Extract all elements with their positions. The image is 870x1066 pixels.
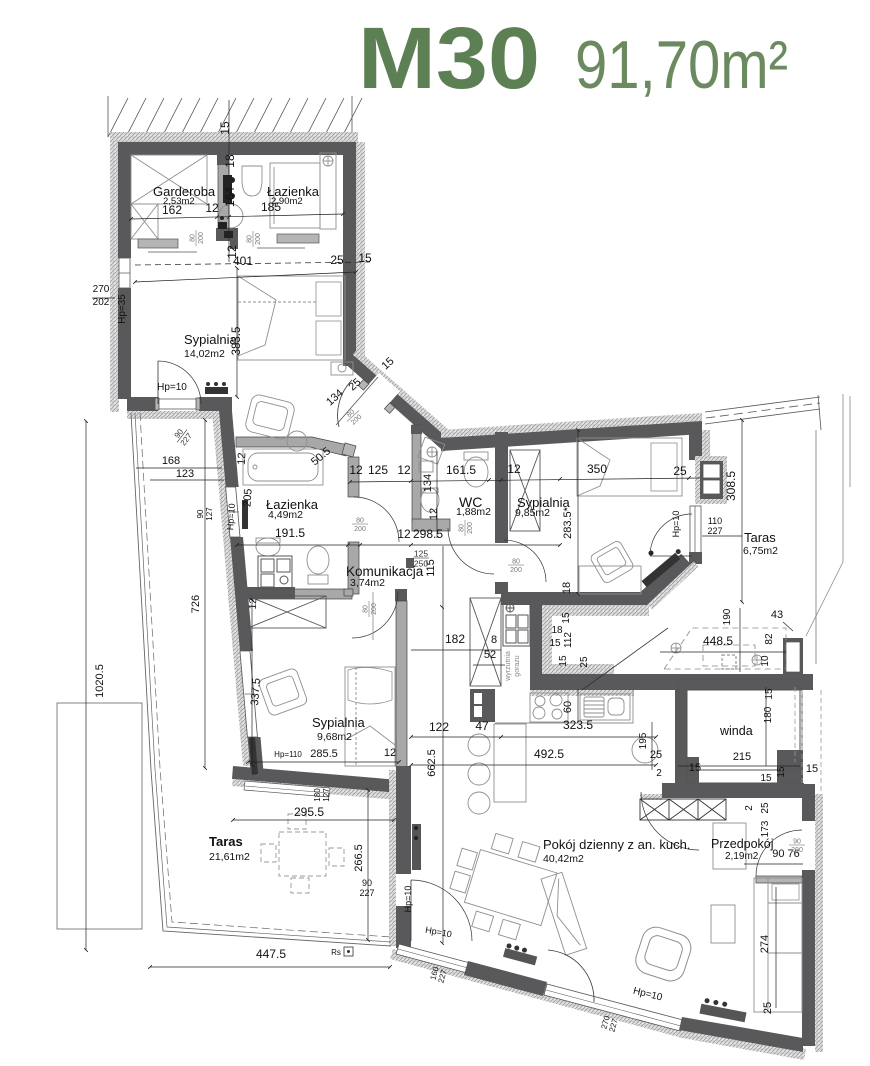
svg-text:205: 205: [241, 488, 254, 507]
svg-text:200: 200: [510, 567, 522, 574]
svg-text:12: 12: [397, 527, 411, 541]
svg-text:122: 122: [429, 720, 449, 734]
svg-text:1,88m2: 1,88m2: [456, 506, 491, 518]
svg-text:295.5: 295.5: [294, 805, 324, 819]
svg-text:14,02m2: 14,02m2: [184, 348, 225, 360]
svg-text:Taras: Taras: [209, 834, 243, 849]
svg-text:Rs: Rs: [331, 948, 341, 957]
svg-text:6,75m2: 6,75m2: [743, 545, 778, 557]
svg-text:15: 15: [689, 762, 701, 774]
svg-text:12: 12: [225, 245, 239, 259]
svg-text:60: 60: [562, 701, 574, 713]
svg-text:Pokój dzienny z an. kuch.: Pokój dzienny z an. kuch.: [543, 837, 690, 852]
svg-text:323.5: 323.5: [563, 718, 593, 732]
svg-text:Hp=110: Hp=110: [274, 750, 302, 759]
svg-text:337.5: 337.5: [249, 678, 263, 706]
svg-text:9,85m2: 9,85m2: [515, 507, 550, 519]
svg-text:Hp=35: Hp=35: [117, 294, 128, 324]
svg-text:202: 202: [93, 297, 110, 308]
svg-text:90: 90: [196, 509, 205, 518]
svg-text:182: 182: [445, 632, 465, 646]
svg-text:195: 195: [638, 732, 649, 749]
svg-text:298.5: 298.5: [413, 527, 443, 541]
svg-text:21,61m2: 21,61m2: [209, 851, 250, 863]
svg-text:127: 127: [205, 507, 214, 521]
svg-text:15: 15: [558, 655, 569, 667]
svg-text:134: 134: [422, 474, 434, 492]
svg-text:200: 200: [791, 847, 803, 854]
svg-text:9,68m2: 9,68m2: [317, 731, 352, 743]
svg-text:12: 12: [507, 462, 521, 476]
svg-text:12: 12: [349, 463, 363, 477]
svg-text:125: 125: [414, 549, 428, 559]
svg-text:Hp=10: Hp=10: [225, 503, 237, 530]
svg-text:Sypialnia: Sypialnia: [312, 715, 366, 730]
svg-text:161.5: 161.5: [446, 463, 476, 477]
svg-text:25: 25: [330, 253, 344, 267]
svg-text:274: 274: [759, 935, 771, 953]
svg-text:15: 15: [776, 766, 787, 778]
svg-text:M30: M30: [358, 10, 540, 107]
svg-text:80: 80: [247, 235, 254, 243]
svg-text:662.5: 662.5: [426, 749, 438, 777]
svg-text:266.5: 266.5: [353, 844, 365, 872]
svg-text:80: 80: [356, 518, 364, 525]
svg-text:gorazu: gorazu: [514, 655, 521, 677]
svg-text:3,74m2: 3,74m2: [350, 577, 385, 589]
svg-text:123: 123: [176, 468, 194, 480]
svg-text:25: 25: [650, 749, 662, 761]
svg-text:80: 80: [459, 524, 466, 532]
svg-text:Hp=10: Hp=10: [671, 511, 681, 538]
svg-text:18: 18: [223, 154, 237, 168]
svg-text:2: 2: [744, 805, 755, 811]
svg-text:82: 82: [764, 633, 775, 645]
svg-text:164: 164: [223, 187, 237, 207]
svg-text:200: 200: [255, 233, 262, 245]
svg-text:43: 43: [771, 609, 783, 621]
svg-text:15: 15: [358, 251, 372, 265]
svg-text:90: 90: [793, 839, 801, 846]
svg-text:wyrzutnia: wyrzutnia: [505, 651, 512, 682]
svg-text:215: 215: [733, 751, 751, 763]
svg-text:447.5: 447.5: [256, 947, 286, 961]
svg-text:2,53m2: 2,53m2: [163, 196, 195, 207]
svg-text:15: 15: [760, 773, 772, 784]
svg-text:285.5: 285.5: [310, 748, 338, 760]
svg-text:91,70m²: 91,70m²: [575, 27, 788, 103]
svg-text:127: 127: [322, 788, 331, 802]
svg-text:1020.5: 1020.5: [94, 664, 106, 698]
svg-text:25: 25: [760, 802, 771, 814]
svg-text:180: 180: [763, 706, 774, 723]
svg-text:8: 8: [491, 634, 497, 646]
svg-text:110: 110: [708, 516, 722, 526]
svg-text:25: 25: [579, 656, 590, 668]
svg-text:Przedpokój: Przedpokój: [711, 837, 774, 851]
svg-text:200: 200: [371, 603, 378, 615]
svg-text:Taras: Taras: [744, 530, 776, 545]
svg-text:12: 12: [397, 463, 411, 477]
svg-text:308.5: 308.5: [724, 471, 738, 501]
svg-text:80: 80: [363, 605, 370, 613]
svg-text:4,49m2: 4,49m2: [268, 509, 303, 521]
svg-text:winda: winda: [719, 724, 753, 738]
svg-text:15: 15: [218, 121, 232, 135]
svg-text:15: 15: [806, 763, 818, 775]
svg-text:2,19m2: 2,19m2: [725, 851, 759, 862]
svg-text:270: 270: [93, 284, 110, 295]
svg-text:12: 12: [248, 597, 260, 609]
svg-text:47: 47: [475, 719, 489, 733]
svg-text:492.5: 492.5: [534, 747, 564, 761]
svg-text:200: 200: [467, 522, 474, 534]
svg-text:350: 350: [587, 462, 607, 476]
svg-text:190: 190: [722, 608, 733, 625]
svg-text:Hp=10: Hp=10: [403, 886, 413, 913]
svg-text:25: 25: [673, 464, 687, 478]
svg-text:283.5*: 283.5*: [562, 506, 574, 539]
svg-text:2,90m2: 2,90m2: [271, 196, 303, 207]
svg-text:18: 18: [551, 625, 563, 636]
svg-text:Hp=10: Hp=10: [157, 382, 187, 393]
svg-text:18: 18: [561, 582, 573, 594]
svg-text:15: 15: [561, 612, 572, 624]
svg-text:12: 12: [428, 508, 440, 520]
svg-text:173: 173: [760, 820, 771, 837]
svg-text:52: 52: [484, 649, 496, 661]
svg-text:726: 726: [190, 595, 202, 613]
svg-text:200: 200: [354, 526, 366, 533]
svg-text:15: 15: [764, 688, 775, 700]
svg-text:180: 180: [313, 788, 322, 802]
svg-text:448.5: 448.5: [703, 634, 733, 648]
svg-text:200: 200: [198, 232, 205, 244]
svg-text:80: 80: [512, 559, 520, 566]
svg-text:2: 2: [656, 768, 662, 779]
svg-text:227: 227: [707, 526, 722, 536]
svg-text:10: 10: [760, 655, 771, 667]
svg-text:168: 168: [162, 455, 180, 467]
svg-text:227: 227: [359, 888, 374, 898]
svg-text:25: 25: [762, 1002, 774, 1014]
svg-text:12: 12: [384, 747, 396, 759]
svg-text:15: 15: [549, 638, 561, 649]
svg-text:191.5: 191.5: [275, 526, 305, 540]
svg-text:90: 90: [362, 878, 372, 888]
svg-text:112: 112: [563, 632, 574, 648]
svg-text:125: 125: [368, 463, 388, 477]
svg-text:Sypialnia: Sypialnia: [184, 332, 238, 347]
svg-text:12: 12: [205, 201, 219, 215]
svg-text:40,42m2: 40,42m2: [543, 853, 584, 865]
svg-text:80: 80: [190, 234, 197, 242]
svg-text:12: 12: [236, 452, 249, 465]
